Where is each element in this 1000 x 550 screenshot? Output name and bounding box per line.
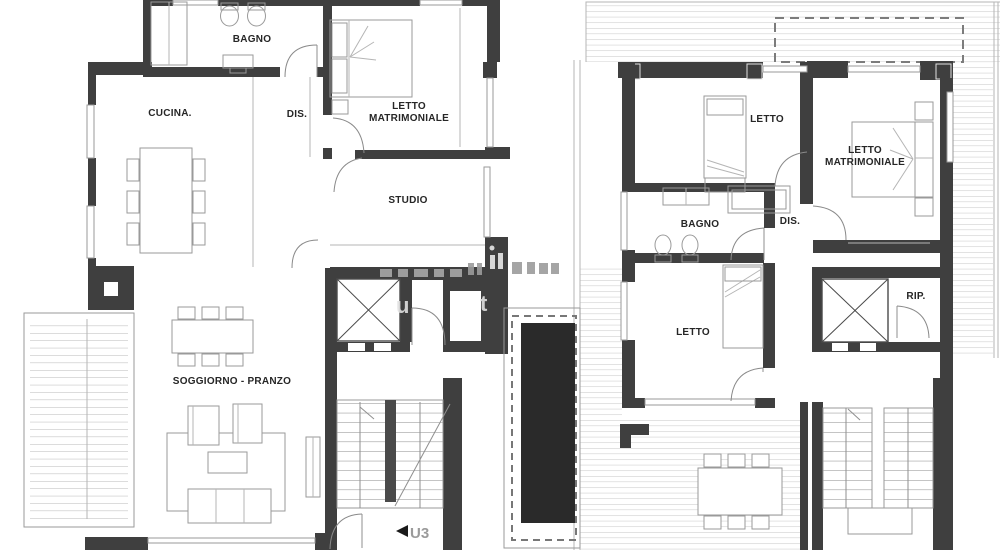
nightstand: [915, 198, 933, 216]
floorplan-drawing: U3 BAGNO CUCINA. DIS. LETTO MATRIMONIALE…: [0, 0, 1000, 550]
terrace-table: [698, 454, 782, 529]
nightstand: [915, 102, 933, 120]
right-matrimonial-bed: [848, 102, 933, 243]
room-label-rip: RIP.: [906, 291, 925, 302]
right-elevator: [822, 279, 888, 351]
right-plan-windows: [621, 66, 953, 405]
room-label-dis: DIS.: [287, 109, 307, 120]
left-elevator: [337, 279, 400, 351]
coffee-table: [208, 452, 247, 473]
watermark-dot: [490, 246, 495, 251]
left-matrimonial-bed: [330, 8, 460, 147]
sink-icon: [223, 55, 253, 68]
left-plan-walls: [85, 0, 510, 550]
stair-direction-arrow-icon: [396, 525, 408, 537]
floorplan-canvas: U3 BAGNO CUCINA. DIS. LETTO MATRIMONIALE…: [0, 0, 1000, 550]
sofa-set: [167, 404, 320, 523]
stair-unit-label: U3: [410, 525, 429, 542]
room-label-letto-matrimoniale: LETTO: [848, 145, 882, 156]
room-label-bagno: BAGNO: [233, 34, 271, 45]
room-label-letto-matrimoniale: LETTO: [392, 101, 426, 112]
right-single-bed-bottom: [723, 265, 763, 348]
rip-closet: [897, 306, 929, 338]
dining-table: [172, 307, 253, 366]
left-balcony: [24, 313, 134, 527]
kitchen-table: [127, 148, 205, 253]
right-single-bed-top: [704, 96, 746, 192]
left-staircase: U3: [330, 400, 450, 549]
room-label-studio: STUDIO: [388, 195, 427, 206]
watermark-fragment: u: [396, 293, 409, 318]
right-plan: LETTO LETTO MATRIMONIALE BAGNO DIS. LETT…: [504, 2, 1000, 550]
room-label-letto-matrimoniale: MATRIMONIALE: [825, 157, 905, 168]
watermark-fragment: t: [480, 291, 488, 316]
terrace-pool: [504, 308, 580, 548]
sofa: [188, 489, 271, 523]
room-label-letto-top: LETTO: [750, 114, 784, 125]
room-label-letto-matrimoniale: MATRIMONIALE: [369, 113, 449, 124]
room-label-soggiorno: SOGGIORNO - PRANZO: [173, 376, 291, 387]
nightstand: [332, 100, 348, 114]
room-label-letto-bottom: LETTO: [676, 327, 710, 338]
room-label-cucina: CUCINA.: [148, 108, 191, 119]
right-staircase: [823, 408, 933, 534]
room-label-dis: DIS.: [780, 216, 800, 227]
room-label-bagno: BAGNO: [681, 219, 719, 230]
